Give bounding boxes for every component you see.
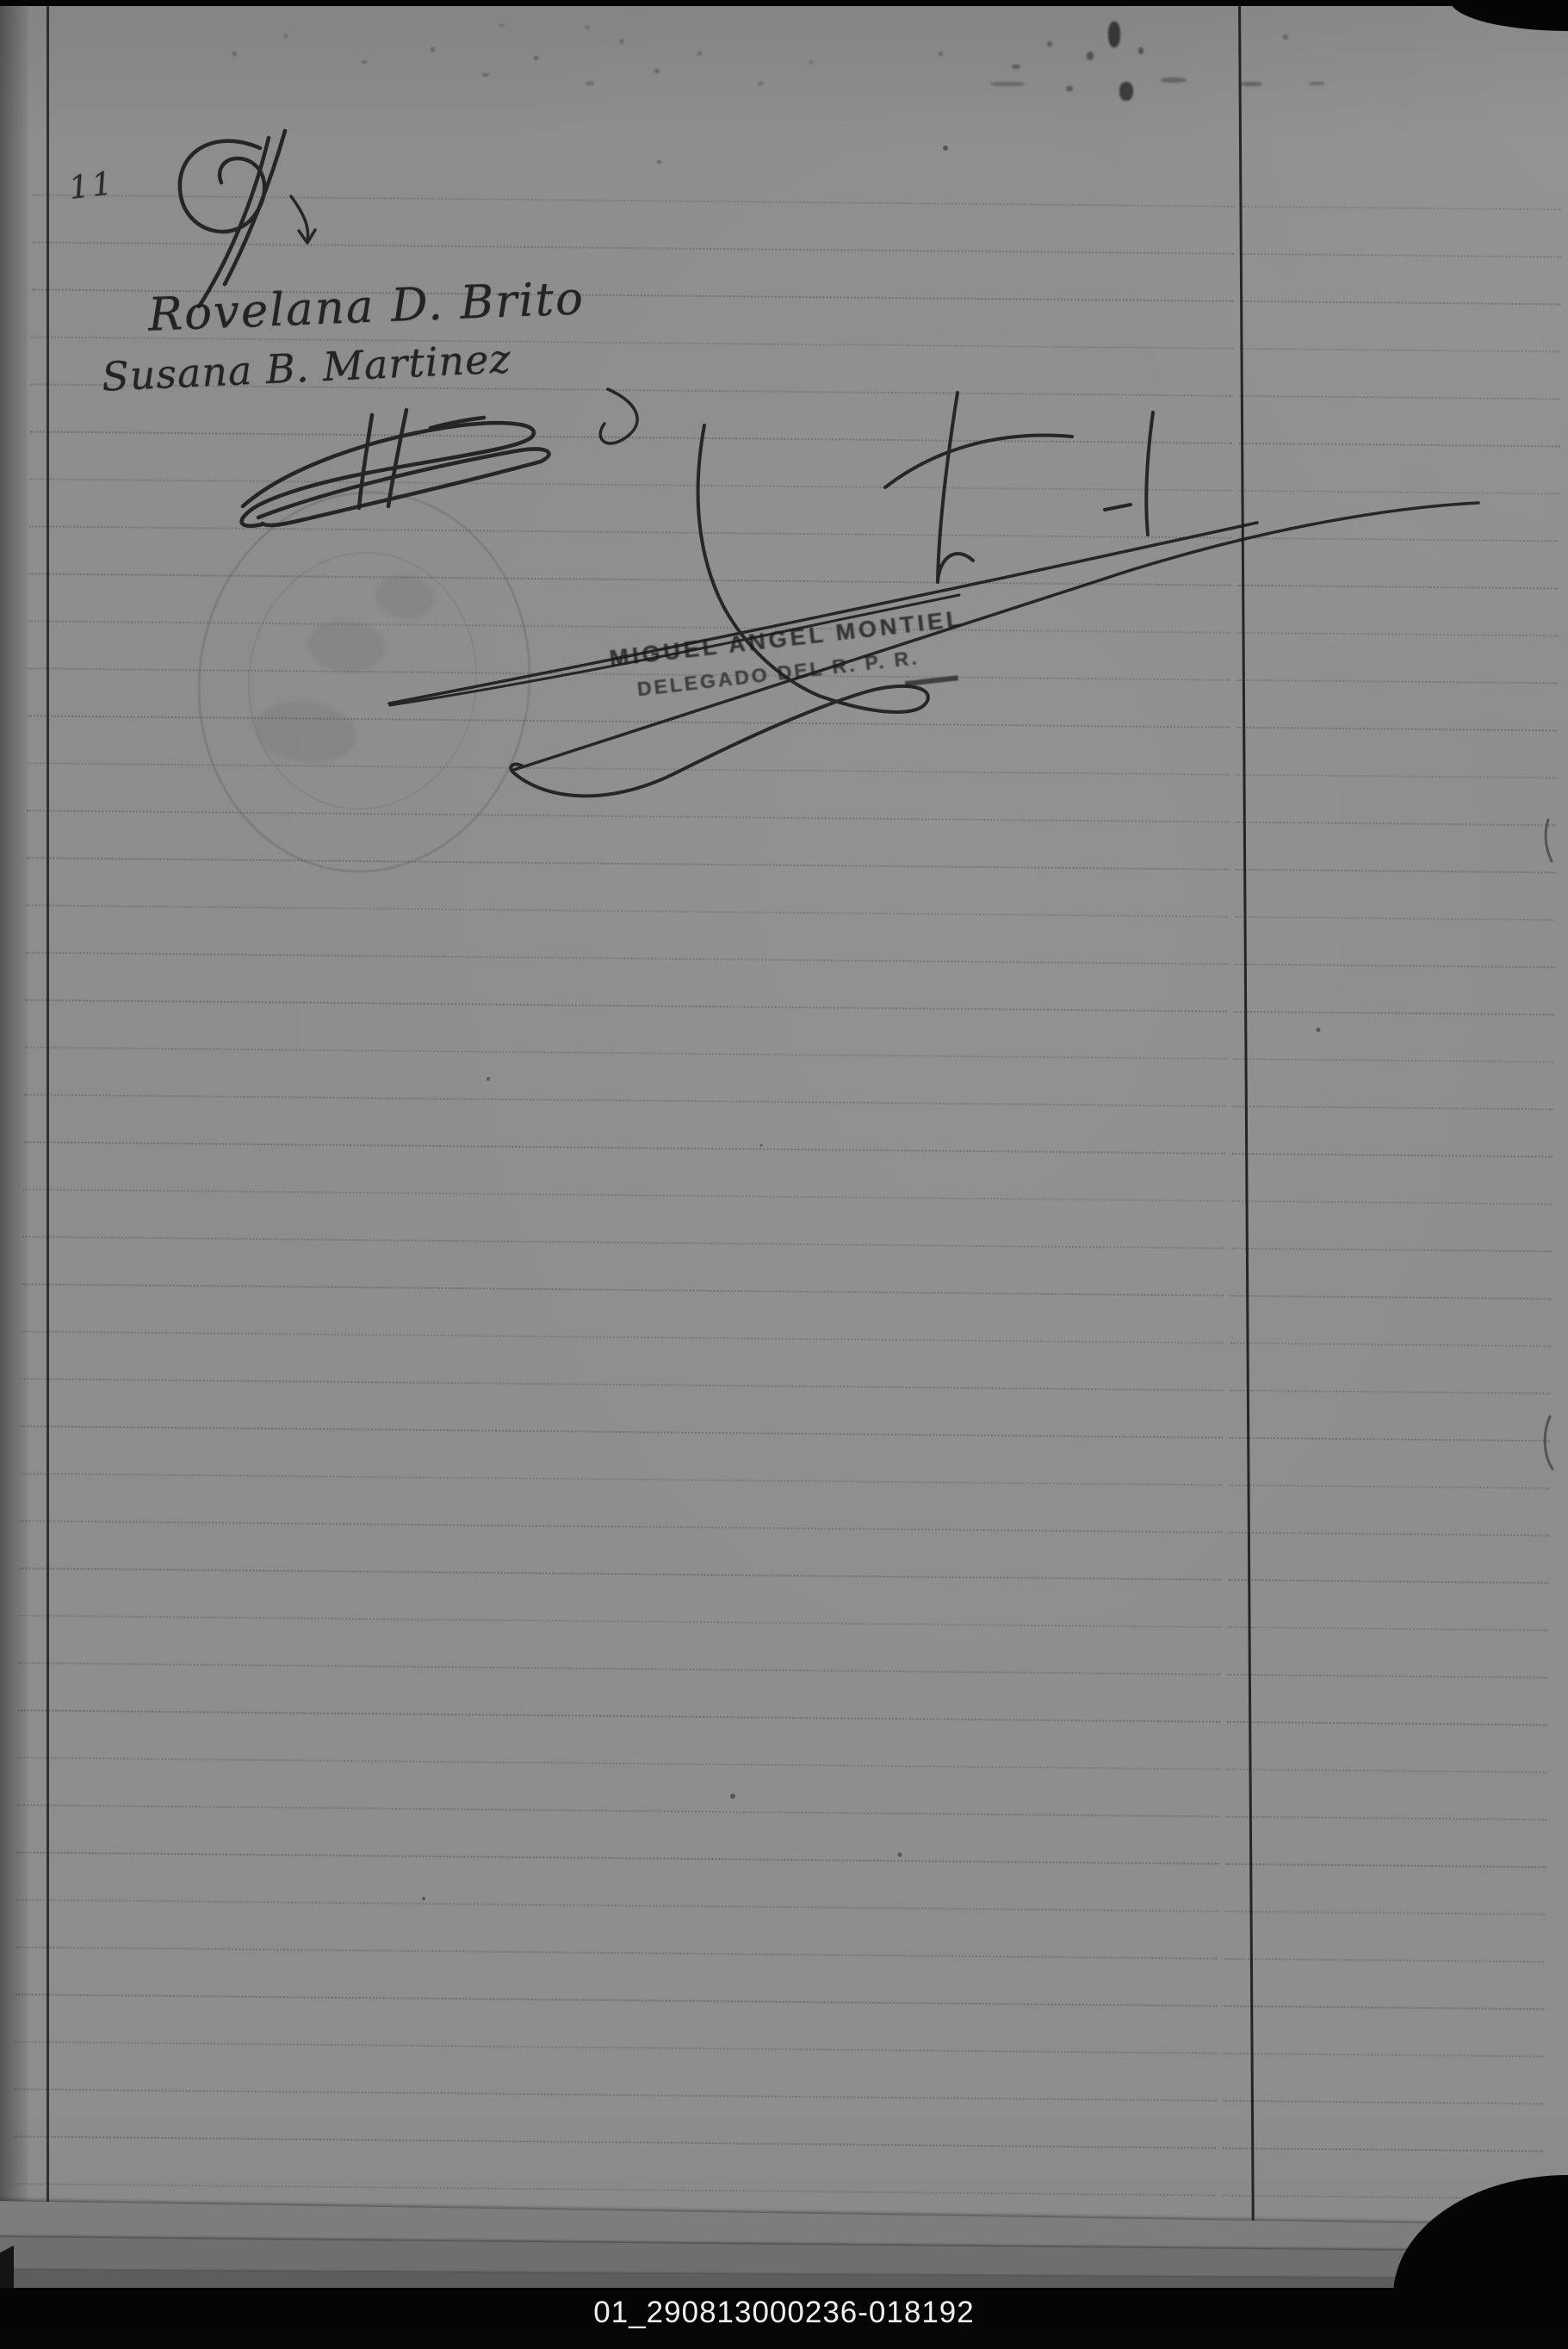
bleed-speck [534,56,538,60]
bleed-speck [1309,82,1324,85]
ruled-line [1235,869,1555,874]
ruled-line [1236,727,1557,732]
ruled-line [1233,1058,1553,1063]
bleed-speck [1283,34,1288,40]
ruled-line [1230,1342,1551,1348]
ruled-line [1225,1863,1546,1869]
ruled-line [1230,1437,1550,1442]
bleed-speck [620,39,623,44]
ruled-line [24,1094,1226,1106]
bleed-speck [1161,77,1187,83]
ruled-line [16,1899,1218,1912]
ruled-line [1226,1769,1546,1774]
ruled-line [22,1236,1224,1249]
ruled-line [18,1662,1220,1675]
ruled-line [26,857,1228,870]
ruled-line [15,1993,1218,2006]
bleed-speck [657,160,661,164]
ruled-line [1228,1627,1548,1632]
ruled-line [1230,1390,1551,1395]
ruled-line [1241,301,1561,306]
bleed-speck [1119,82,1133,101]
ruled-line [1240,395,1560,400]
ruled-line [32,241,1234,254]
ruled-line [22,1330,1224,1343]
ruled-line [1237,632,1558,637]
scan-id-label: 01_290813000236-018192 [0,2293,1568,2333]
ruled-line [23,1141,1225,1154]
ruled-line [20,1520,1222,1533]
ruled-line [1238,537,1559,542]
bleed-speck [586,26,589,29]
ruled-line [24,1046,1226,1059]
ruled-line [1229,1532,1549,1537]
ruled-line [16,1851,1218,1864]
bleed-speck [1240,82,1262,86]
ruled-line [30,431,1232,443]
bleed-speck [758,82,764,85]
ruled-line [1229,1484,1549,1490]
ruled-line [1224,2005,1545,2011]
ruled-line [22,1378,1224,1391]
ruled-line [1242,206,1562,211]
bleed-speck [431,47,435,52]
bleed-speck [1066,86,1073,91]
ruled-line [14,2135,1216,2148]
ruled-line [27,762,1229,775]
bleed-speck [1108,22,1120,47]
ruled-line [29,525,1231,538]
ruled-line [1239,490,1559,495]
bleed-speck [1012,65,1020,69]
ruled-line [1223,2148,1543,2153]
bleed-speck [586,82,594,85]
ruled-line [1224,2100,1544,2105]
bleed-speck [654,69,660,73]
ruled-line [29,573,1231,586]
bleed-speck [284,34,288,38]
ruled-line [1234,1011,1554,1016]
ruled-line [15,2088,1217,2101]
ruled-line [1235,916,1555,921]
ruled-line [1238,585,1559,590]
ruled-line [1241,253,1561,258]
bleed-speck [1047,41,1052,46]
ruled-line [21,1472,1223,1485]
ruled-line [19,1615,1221,1627]
ruled-line [30,478,1232,491]
ruled-line [15,1946,1218,1959]
ruled-line [22,1283,1224,1296]
bleed-speck [1087,52,1094,60]
bleed-speck [362,60,367,64]
ruled-line [17,1757,1219,1769]
ruled-line [21,1425,1223,1438]
ruled-line [1234,964,1554,969]
ruled-line [14,2183,1216,2196]
ruled-line [18,1709,1220,1722]
round-ink-stamp-inner-ring [233,539,493,823]
bleed-through-marks [0,0,1568,172]
bleed-speck [482,73,489,77]
ruled-line [1236,679,1557,685]
bleed-speck [809,60,813,64]
ruled-line [1224,1958,1545,1963]
ruled-line [1231,1248,1552,1253]
ruled-line [1236,821,1556,827]
bleed-speck [697,52,702,55]
ruled-line [23,1188,1225,1201]
ruled-line [25,999,1227,1012]
bleed-speck [1138,47,1143,54]
ruled-line [15,2041,1217,2054]
ruled-line [1227,1674,1547,1679]
ruled-line [20,1567,1222,1580]
ruled-line [1236,774,1556,779]
bleed-speck [990,82,1025,86]
ruled-line [1240,348,1560,353]
ruled-line [1239,443,1559,448]
ruled-line [1226,1816,1546,1821]
ruled-line [1224,2053,1544,2058]
ruled-line [27,809,1229,822]
ruled-line [1228,1579,1548,1584]
bleed-speck [232,52,237,56]
ruled-line [1232,1200,1553,1205]
ruled-line [17,1804,1219,1817]
ruled-line [25,951,1227,964]
ruled-line [1231,1295,1552,1300]
ruled-line [1232,1153,1553,1158]
bleed-speck [939,52,943,56]
ruled-line [1225,1911,1546,1916]
left-margin-rule [46,0,49,2244]
bleed-speck [499,24,504,27]
ruled-line [33,194,1235,207]
ruled-line [1233,1106,1553,1111]
ruled-line [26,904,1228,917]
ruled-line [1227,1721,1547,1726]
top-edge [0,0,1568,6]
